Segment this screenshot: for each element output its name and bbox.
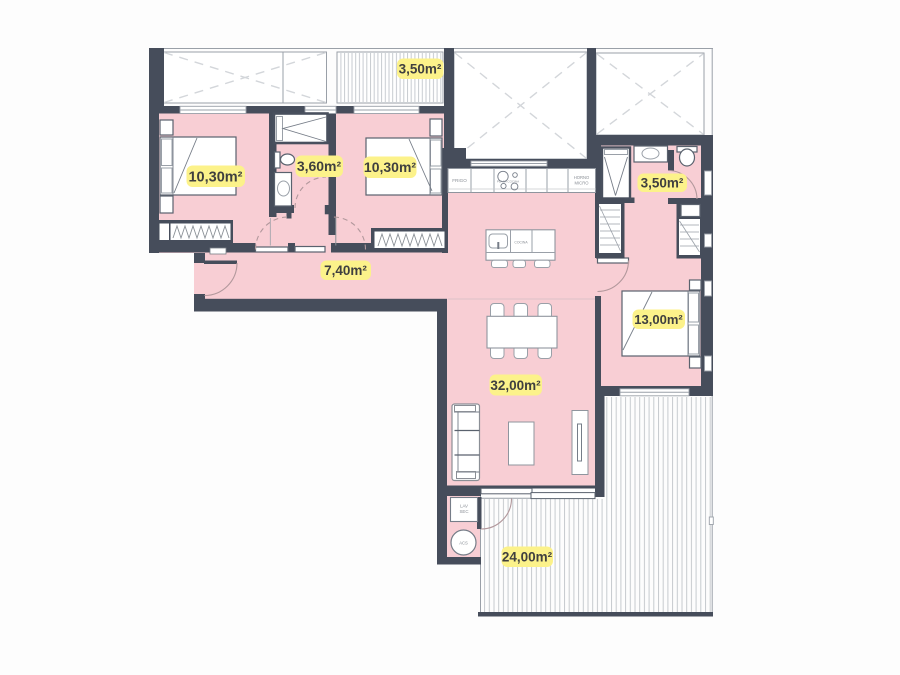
svg-text:3,50m²: 3,50m² [399, 62, 442, 77]
svg-text:7,40m²: 7,40m² [324, 263, 367, 278]
svg-text:32,00m²: 32,00m² [490, 378, 541, 393]
svg-text:ACS: ACS [459, 541, 468, 546]
svg-text:3,50m²: 3,50m² [641, 176, 684, 191]
svg-text:HORNO: HORNO [574, 175, 590, 180]
svg-text:13,00m²: 13,00m² [634, 312, 683, 327]
svg-text:10,30m²: 10,30m² [364, 159, 416, 175]
svg-text:SEC: SEC [459, 509, 468, 514]
svg-text:COCINA: COCINA [514, 241, 528, 245]
svg-text:PLACA COCINA: PLACA COCINA [497, 179, 519, 183]
svg-text:3,60m²: 3,60m² [297, 158, 342, 174]
svg-text:LAV: LAV [460, 504, 468, 509]
svg-text:MICRO: MICRO [575, 181, 590, 186]
svg-text:10,30m²: 10,30m² [188, 170, 242, 186]
svg-text:24,00m²: 24,00m² [502, 550, 553, 565]
svg-text:FRIGO: FRIGO [452, 178, 467, 183]
